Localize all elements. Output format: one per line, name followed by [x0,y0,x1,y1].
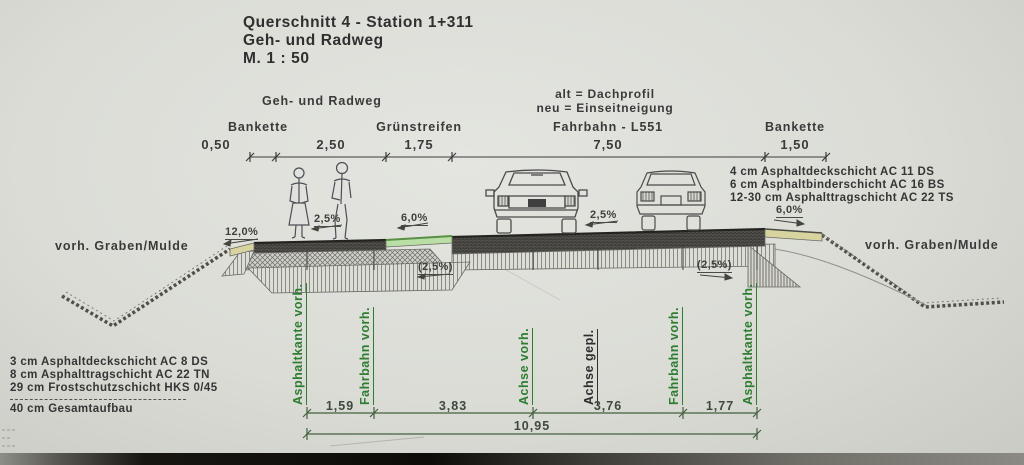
axis-label-asphaltkante-left: Asphaltkante vorh. [291,255,307,405]
path-layer-1: 3 cm Asphaltdeckschicht AC 8 DS [10,356,218,369]
dim-value-gruenstreifen: 1,75 [389,137,449,152]
path-heading-label: Geh- und Radweg [262,94,382,108]
axis-label-achse-gepl: Achse gepl. [582,255,598,405]
drawing-subtitle: Geh- und Radweg [243,32,474,50]
title-block: Querschnitt 4 - Station 1+311 Geh- und R… [243,14,474,68]
slope-label-existing-left: (2,5%) [418,261,453,275]
car-left [486,170,587,233]
bottom-dim-total: 10,95 [502,419,562,433]
layer-sum-divider [10,399,186,400]
dim-value-bankette-left: 0,50 [186,137,246,152]
path-layer-list: 3 cm Asphaltdeckschicht AC 8 DS 8 cm Asp… [10,356,218,416]
path-layer-3: 29 cm Frostschutzschicht HKS 0/45 [10,382,218,395]
pedestrian-figure-right [332,163,351,240]
dim-label-gruenstreifen: Grünstreifen [359,120,479,134]
road-layer-1: 4 cm Asphaltdeckschicht AC 11 DS [730,166,954,179]
ditch-label-right: vorh. Graben/Mulde [865,238,999,252]
profile-note-new: neu = Einseitneigung [500,101,710,115]
bottom-dim-4: 1,77 [690,399,750,413]
slope-label-embankment-left: 12,0% [225,226,258,240]
slope-label-bankette-right: 6,0% [776,204,803,218]
path-layer-total: 40 cm Gesamtaufbau [10,403,218,416]
road-layer-list: 4 cm Asphaltdeckschicht AC 11 DS 6 cm As… [730,166,954,205]
road-layer-3: 12-30 cm Asphalttragschicht AC 22 TS [730,192,954,205]
slope-label-existing-right: (2,5%) [697,259,732,273]
drawing-title: Querschnitt 4 - Station 1+311 [243,14,474,32]
axis-label-asphaltkante-right: Asphaltkante vorh. [741,255,757,405]
profile-note: alt = Dachprofil neu = Einseitneigung [500,87,710,115]
ditch-label-left: vorh. Graben/Mulde [55,239,189,253]
car-right [637,171,705,230]
slope-label-path: 2,5% [314,213,341,227]
profile-note-old: alt = Dachprofil [500,87,710,101]
cross-section-drawing-sheet: Querschnitt 4 - Station 1+311 Geh- und R… [0,0,1024,465]
pedestrian-figure-left [289,168,309,238]
axis-label-achse-vorh: Achse vorh. [517,255,533,405]
axis-label-fahrbahn-right: Fahrbahn vorh. [667,255,683,405]
bottom-dim-1: 1,59 [310,399,370,413]
dim-value-path: 2,50 [301,137,361,152]
top-dimension-line [246,152,830,162]
axis-label-fahrbahn-left: Fahrbahn vorh. [358,255,374,405]
road-layer-2: 6 cm Asphaltbinderschicht AC 16 BS [730,179,954,192]
path-layer-2: 8 cm Asphalttragschicht AC 22 TN [10,369,218,382]
photo-edge-shadow [0,453,1024,465]
slope-label-gruenstreifen: 6,0% [401,212,428,226]
dim-value-bankette-right: 1,50 [765,137,825,152]
dim-label-bankette-right: Bankette [735,120,855,134]
dim-label-bankette-left: Bankette [198,120,318,134]
slope-label-road: 2,5% [590,209,617,223]
bottom-dim-3: 3,76 [578,399,638,413]
bottom-dim-2: 3,83 [423,399,483,413]
dim-value-fahrbahn: 7,50 [578,137,638,152]
embankment-left [62,246,230,326]
drawing-scale: M. 1 : 50 [243,50,474,68]
dim-label-fahrbahn: Fahrbahn - L551 [528,120,688,134]
